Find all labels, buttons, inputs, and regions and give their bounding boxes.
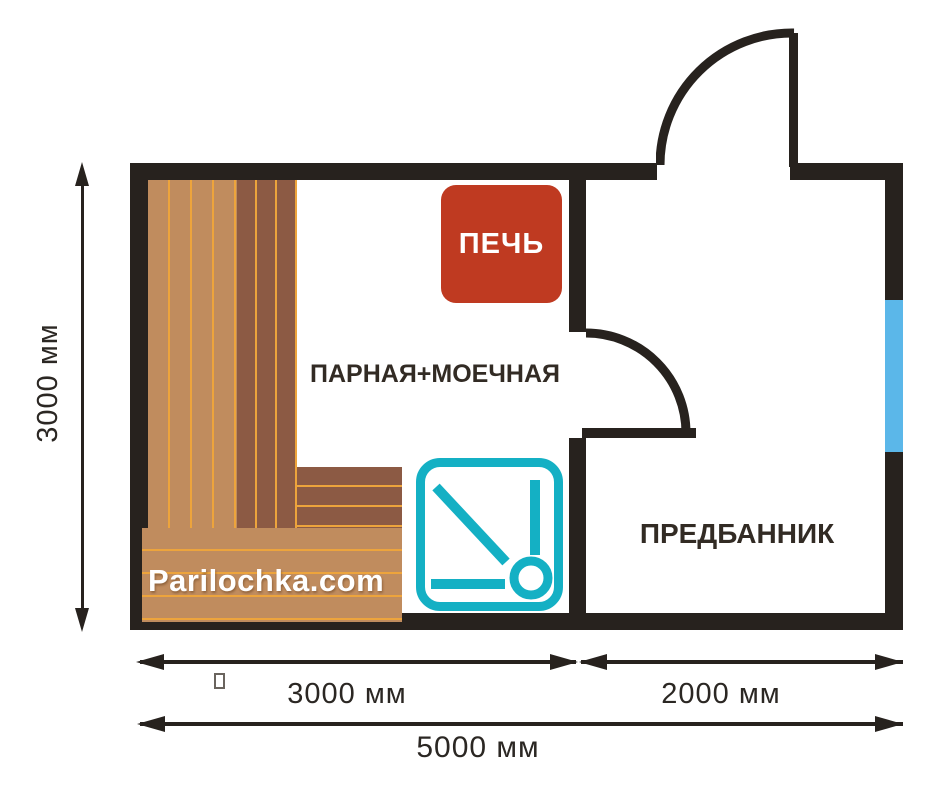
dim-line-total-width (140, 722, 903, 726)
stove-label: ПЕЧЬ (459, 228, 544, 261)
artifact-box-glyph (214, 673, 225, 689)
dim-arrow-right-3 (875, 716, 903, 732)
shower-icon (416, 458, 563, 611)
bench-corner-dark-planks (297, 467, 402, 528)
dim-label-steam-width: 3000 мм (247, 678, 447, 711)
dim-label-anteroom-width: 2000 мм (621, 678, 821, 711)
inner-door-swing-arc (578, 326, 698, 442)
dim-label-total-width: 5000 мм (378, 731, 578, 765)
entrance-door-swing-arc (656, 28, 802, 170)
dim-arrow-right-1 (550, 654, 578, 670)
stove: ПЕЧЬ (441, 185, 562, 303)
room-label-steam-wash: ПАРНАЯ+МОЕЧНАЯ (310, 360, 560, 389)
sauna-floor-plan: ПЕЧЬ ПАРНАЯ+МОЕЧНАЯ ПРЕДБАННИК Parilochk… (0, 0, 950, 789)
dim-line-left-vertical (81, 170, 84, 622)
dim-label-height: 3000 мм (30, 293, 66, 473)
bench-left-dark-planks (237, 180, 297, 528)
dim-line-anteroom-width (581, 660, 903, 664)
dim-arrow-left-3 (137, 716, 165, 732)
dim-line-steam-width (140, 660, 576, 664)
dim-arrow-left-2 (579, 654, 607, 670)
dim-arrow-up (75, 162, 89, 186)
dim-arrow-down (75, 608, 89, 632)
window (885, 300, 903, 452)
dim-arrow-left-1 (136, 654, 164, 670)
wall-inner-upper (569, 163, 586, 332)
wall-inner-lower (569, 438, 586, 613)
bench-left-light-planks (148, 180, 237, 528)
watermark-text: Parilochka.com (148, 563, 398, 599)
room-label-anteroom: ПРЕДБАННИК (617, 518, 857, 550)
dim-arrow-right-2 (875, 654, 903, 670)
